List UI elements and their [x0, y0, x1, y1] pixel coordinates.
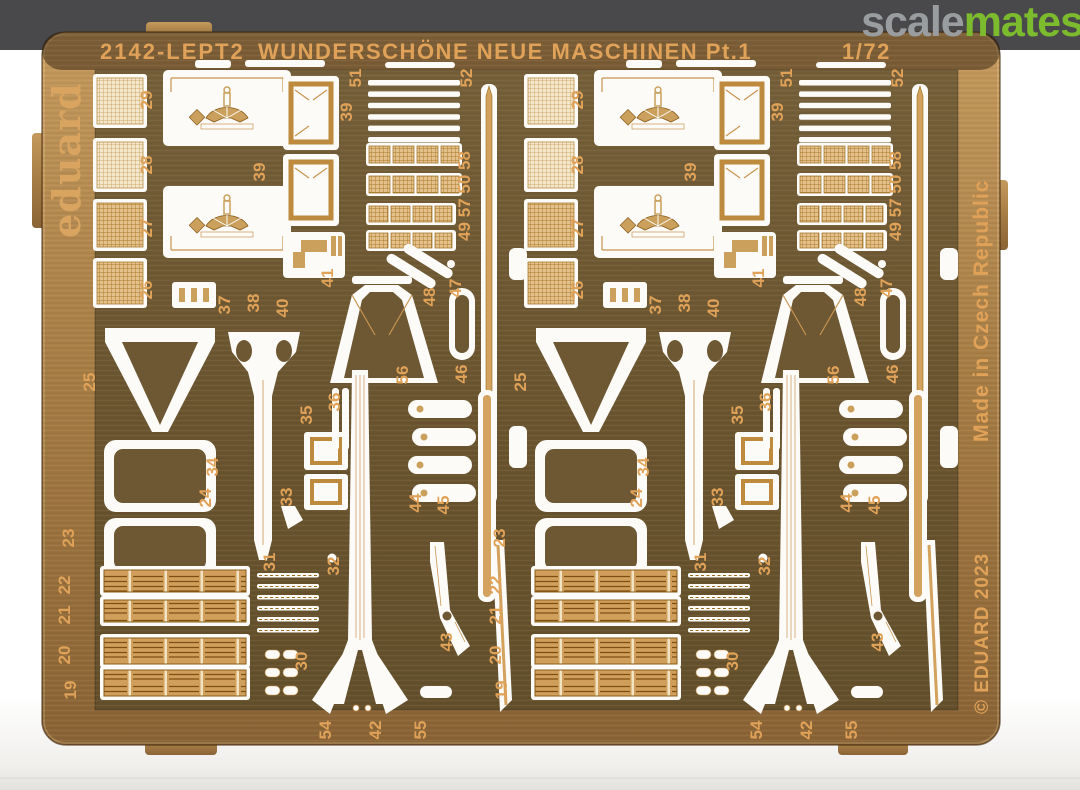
part-number-label: 49 57 50 58 — [886, 151, 905, 241]
part-number-label: 54 — [747, 720, 766, 739]
part-number-label: 39 — [250, 163, 269, 182]
part-number-label: 25 — [511, 373, 530, 392]
part-number-label: 30 — [723, 652, 742, 671]
part-number-label: 47 — [877, 279, 896, 298]
part-number-label: 31 — [260, 553, 279, 572]
part-number-label: 20 — [55, 646, 74, 665]
part-number-label: 41 — [749, 269, 768, 288]
part-number-label: 36 — [325, 393, 344, 412]
part-number-label: 25 — [80, 373, 99, 392]
part-number-label: 24 — [627, 488, 646, 507]
part-number-label: 41 — [318, 269, 337, 288]
part-number-label: 39 — [768, 103, 787, 122]
part-number-label: 29 — [568, 91, 587, 110]
part-number-label: 39 — [337, 103, 356, 122]
part-number-label: 19 — [492, 681, 511, 700]
part-number-label: 42 — [797, 721, 816, 740]
part-number-label: 21 — [55, 606, 74, 625]
part-number-label: 31 — [691, 553, 710, 572]
part-number-label: 52 — [457, 69, 476, 88]
part-number-label: 28 — [568, 156, 587, 175]
part-number-label: 47 — [446, 279, 465, 298]
part-number-label: 51 — [777, 69, 796, 88]
part-number-label: 37 — [646, 296, 665, 315]
part-number-label: 56 — [393, 366, 412, 385]
watermark-mates-text: mates — [964, 0, 1080, 46]
part-number-label: 43 — [868, 633, 887, 652]
part-number-label: 51 — [346, 69, 365, 88]
part-number-label: 24 — [196, 488, 215, 507]
part-number-label: 29 — [137, 91, 156, 110]
part-number-label: 44 — [837, 493, 856, 512]
part-number-label: 30 — [292, 652, 311, 671]
part-number-label: 43 — [437, 633, 456, 652]
part-number-label: 32 — [324, 557, 343, 576]
part-number-label: 22 — [55, 576, 74, 595]
part-number-label: 56 — [824, 366, 843, 385]
part-number-label: 23 — [59, 529, 78, 548]
watermark-scale-text: scale — [861, 0, 964, 46]
part-number-label: 55 — [411, 721, 430, 740]
part-number-label: 38 — [244, 294, 263, 313]
part-number-label: 35 — [728, 406, 747, 425]
part-number-label: 19 — [61, 681, 80, 700]
part-number-label: 39 — [681, 163, 700, 182]
copyright-text: © EDUARD 2023 — [972, 553, 993, 714]
part-number-label: 21 — [486, 606, 505, 625]
part-number-label: 40 — [273, 299, 292, 318]
part-number-label: 28 — [137, 156, 156, 175]
part-number-label: 23 — [490, 529, 509, 548]
part-number-label: 48 — [851, 288, 870, 307]
part-number-label: 27 — [568, 219, 587, 238]
part-number-label: 34 — [203, 457, 222, 476]
part-number-label: 20 — [486, 646, 505, 665]
part-number-label: 46 — [883, 365, 902, 384]
part-number-label: 37 — [215, 296, 234, 315]
part-number-label: 46 — [452, 365, 471, 384]
part-number-label: 52 — [888, 69, 907, 88]
eduard-logo: eduard — [44, 82, 89, 238]
part-number-label: 27 — [137, 219, 156, 238]
part-number-label: 33 — [277, 488, 296, 507]
part-number-label: 42 — [366, 721, 385, 740]
photo-etch-fret: 292827263939415149 57 50 585247484656363… — [0, 0, 1080, 790]
fret-code-text: 2142-LEPT2 — [100, 39, 245, 64]
part-number-label: 55 — [842, 721, 861, 740]
made-in-text: Made in Czech Republic — [970, 180, 993, 442]
part-number-label: 54 — [316, 720, 335, 739]
part-number-label: 36 — [756, 393, 775, 412]
part-number-label: 26 — [568, 281, 587, 300]
part-number-label: 40 — [704, 299, 723, 318]
part-number-label: 38 — [675, 294, 694, 313]
part-number-label: 32 — [755, 557, 774, 576]
part-number-label: 44 — [406, 493, 425, 512]
part-number-label: 49 57 50 58 — [455, 151, 474, 241]
part-number-label: 34 — [634, 457, 653, 476]
part-number-label: 45 — [434, 496, 453, 515]
part-number-label: 45 — [865, 496, 884, 515]
part-number-label: 48 — [420, 288, 439, 307]
part-number-label: 35 — [297, 406, 316, 425]
scalemates-watermark: scalemates — [861, 0, 1080, 46]
fret-title-text: WUNDERSCHÖNE NEUE MASCHINEN Pt.1 — [258, 39, 752, 64]
part-number-label: 26 — [137, 281, 156, 300]
part-number-label: 22 — [486, 576, 505, 595]
part-number-label: 33 — [708, 488, 727, 507]
